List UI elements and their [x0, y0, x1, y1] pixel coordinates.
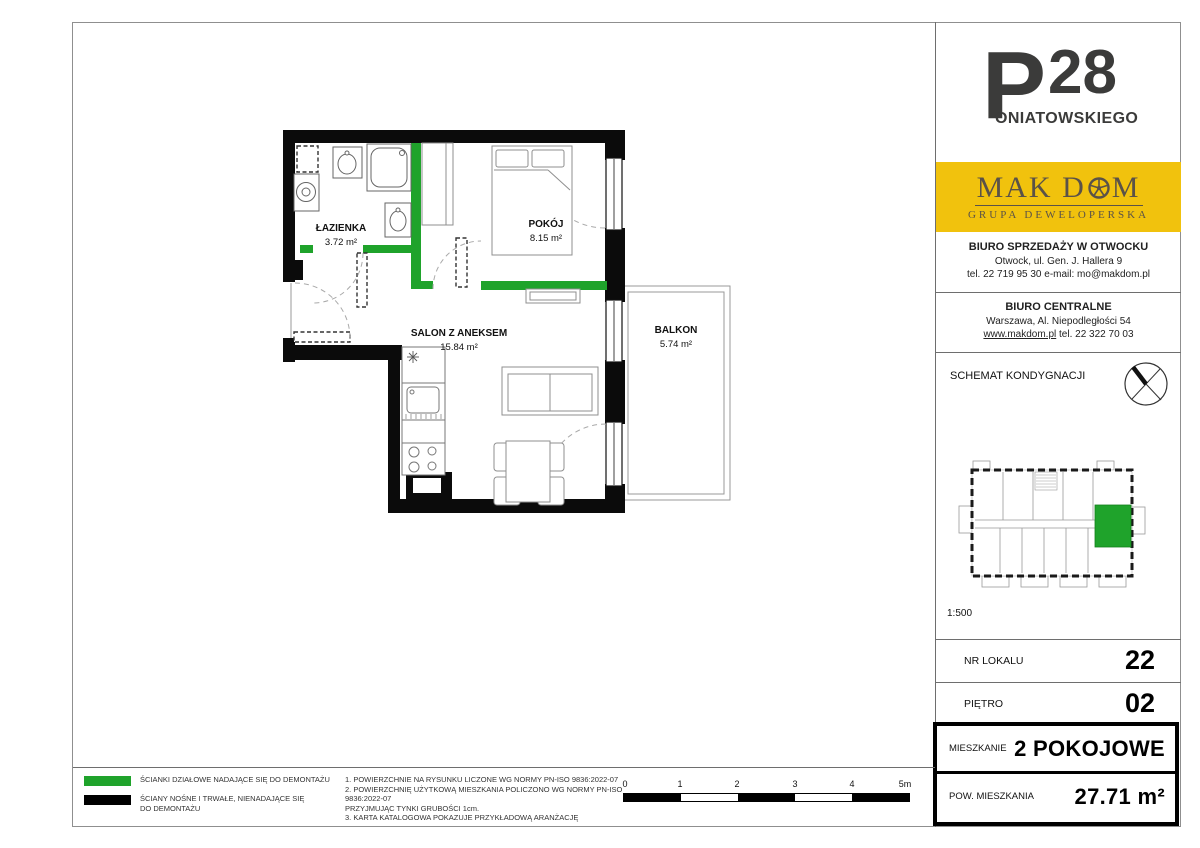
- scale-tick-label: 2: [734, 779, 739, 789]
- partition-wall-swatch: [84, 776, 131, 786]
- scale-bar: 0 1 2 3 4 5m: [623, 779, 910, 805]
- floor-label: PIĘTRO: [964, 698, 1003, 710]
- office-central: BIURO CENTRALNE Warszawa, Al. Niepodległ…: [936, 292, 1181, 352]
- load-bearing-walls: [283, 130, 625, 513]
- apartment-area-label: POW. MIESZKANIA: [949, 791, 1034, 802]
- office-contact: tel. 22 719 95 30 e-mail: mo@makdom.pl: [936, 268, 1181, 281]
- room-area-lazienka: 3.72 m²: [325, 237, 357, 248]
- room-area-balkon: 5.74 m²: [660, 339, 692, 350]
- scale-tick-label: 0: [622, 779, 627, 789]
- office-title: BIURO SPRZEDAŻY W OTWOCKU: [936, 241, 1181, 253]
- floor-schematic-drawing: [955, 455, 1155, 613]
- makdom-wordmark: MAK D M: [977, 173, 1141, 203]
- schematic-stairs: [1035, 472, 1057, 490]
- apartment-summary-box: MIESZKANIE 2 POKOJOWE POW. MIESZKANIA 27…: [933, 722, 1179, 826]
- floor-plan-drawing: ŁAZIENKA 3.72 m² POKÓJ 8.15 m² SALON Z A…: [275, 120, 745, 570]
- balcony-outline: [622, 286, 730, 500]
- brand-rule: [975, 205, 1143, 206]
- office-phone: tel. 22 322 70 03: [1059, 329, 1134, 340]
- floor-schematic-title: SCHEMAT KONDYGNACJI: [950, 370, 1085, 382]
- room-label-balkon: BALKON: [655, 325, 698, 336]
- loadbearing-wall-swatch: [84, 795, 131, 805]
- apartment-area-value: 27.71 m²: [1075, 784, 1165, 810]
- note-line: PRZYJMUJĄC TYNKI GRUBOŚCI 1cm.: [345, 804, 635, 814]
- note-line: 2. POWIERZCHNIĘ UŻYTKOWĄ MIESZKANIA POLI…: [345, 785, 635, 804]
- unit-number-label: NR LOKALU: [964, 655, 1024, 667]
- catalog-card-page: ŁAZIENKA 3.72 m² POKÓJ 8.15 m² SALON Z A…: [0, 0, 1200, 848]
- wall-niche: [413, 478, 441, 493]
- scale-tick-label: 3: [792, 779, 797, 789]
- wall-legend: ŚCIANKI DZIAŁOWE NADAJĄCE SIĘ DO DEMONTA…: [84, 775, 334, 821]
- bottom-strip-divider: [73, 767, 935, 768]
- scale-tick-label: 4: [849, 779, 854, 789]
- scale-bar-segments: [623, 793, 910, 802]
- schematic-scale-label: 1:500: [947, 608, 972, 619]
- apartment-type-value: 2 POKOJOWE: [1014, 736, 1165, 762]
- note-line: 3. KARTA KATALOGOWA POKAZUJE PRZYKŁADOWĄ…: [345, 813, 635, 823]
- unit-number-row: NR LOKALU 22: [936, 639, 1181, 682]
- living-room-furniture: [494, 367, 598, 505]
- logo-name-rest: ONIATOWSKIEGO: [995, 110, 1138, 128]
- apartment-area-row: POW. MIESZKANIA 27.71 m²: [937, 771, 1175, 819]
- room-label-lazienka: ŁAZIENKA: [316, 223, 367, 234]
- office-address: Otwock, ul. Gen. J. Hallera 9: [936, 255, 1181, 268]
- scale-tick-label: 5m: [899, 779, 912, 789]
- legend-label: ŚCIANKI DZIAŁOWE NADAJĄCE SIĘ DO DEMONTA…: [140, 775, 330, 785]
- legend-item-partition: ŚCIANKI DZIAŁOWE NADAJĄCE SIĘ DO DEMONTA…: [84, 775, 334, 786]
- wordmark-pre: MAK D: [977, 173, 1086, 203]
- scale-tick-label: 1: [677, 779, 682, 789]
- legend-item-loadbearing: ŚCIANY NOŚNE I TRWAŁE, NIENADAJĄCE SIĘ D…: [84, 794, 334, 813]
- section-divider: [936, 352, 1181, 353]
- room-label-pokoj: POKÓJ: [528, 217, 563, 230]
- schematic-highlighted-unit: [1095, 505, 1131, 547]
- website-link: www.makdom.pl: [983, 329, 1056, 340]
- room-area-pokoj: 8.15 m²: [530, 233, 562, 244]
- unit-number-value: 22: [1125, 645, 1155, 676]
- wordmark-post: M: [1112, 173, 1141, 203]
- notes-block: 1. POWIERZCHNIE NA RYSUNKU LICZONE WG NO…: [345, 775, 635, 823]
- wheel-o-icon: [1087, 176, 1111, 200]
- logo-number: 28: [1048, 42, 1117, 104]
- room-area-salon: 15.84 m²: [440, 342, 478, 353]
- floor-value: 02: [1125, 688, 1155, 719]
- note-line: 1. POWIERZCHNIE NA RYSUNKU LICZONE WG NO…: [345, 775, 635, 785]
- brand-subtitle: GRUPA DEWELOPERSKA: [968, 209, 1149, 221]
- room-label-salon: SALON Z ANEKSEM: [411, 328, 507, 339]
- legend-label-line2: DO DEMONTAŻU: [140, 804, 200, 813]
- makdom-brand-band: MAK D M GRUPA DEWELOPERSKA: [936, 162, 1181, 232]
- apartment-type-row: MIESZKANIE 2 POKOJOWE: [937, 726, 1175, 771]
- office-sales: BIURO SPRZEDAŻY W OTWOCKU Otwock, ul. Ge…: [936, 232, 1181, 292]
- p28-logo: P 28 ONIATOWSKIEGO: [982, 52, 1132, 132]
- kitchen-fixtures: [402, 347, 445, 475]
- floor-row: PIĘTRO 02: [936, 682, 1181, 725]
- office-address: Warszawa, Al. Niepodległości 54: [936, 315, 1181, 328]
- windows: [606, 158, 622, 486]
- legend-label-line1: ŚCIANY NOŚNE I TRWAŁE, NIENADAJĄCE SIĘ: [140, 794, 304, 803]
- apartment-type-label: MIESZKANIE: [949, 743, 1007, 754]
- office-title: BIURO CENTRALNE: [936, 301, 1181, 313]
- north-arrow-icon: [1122, 360, 1170, 408]
